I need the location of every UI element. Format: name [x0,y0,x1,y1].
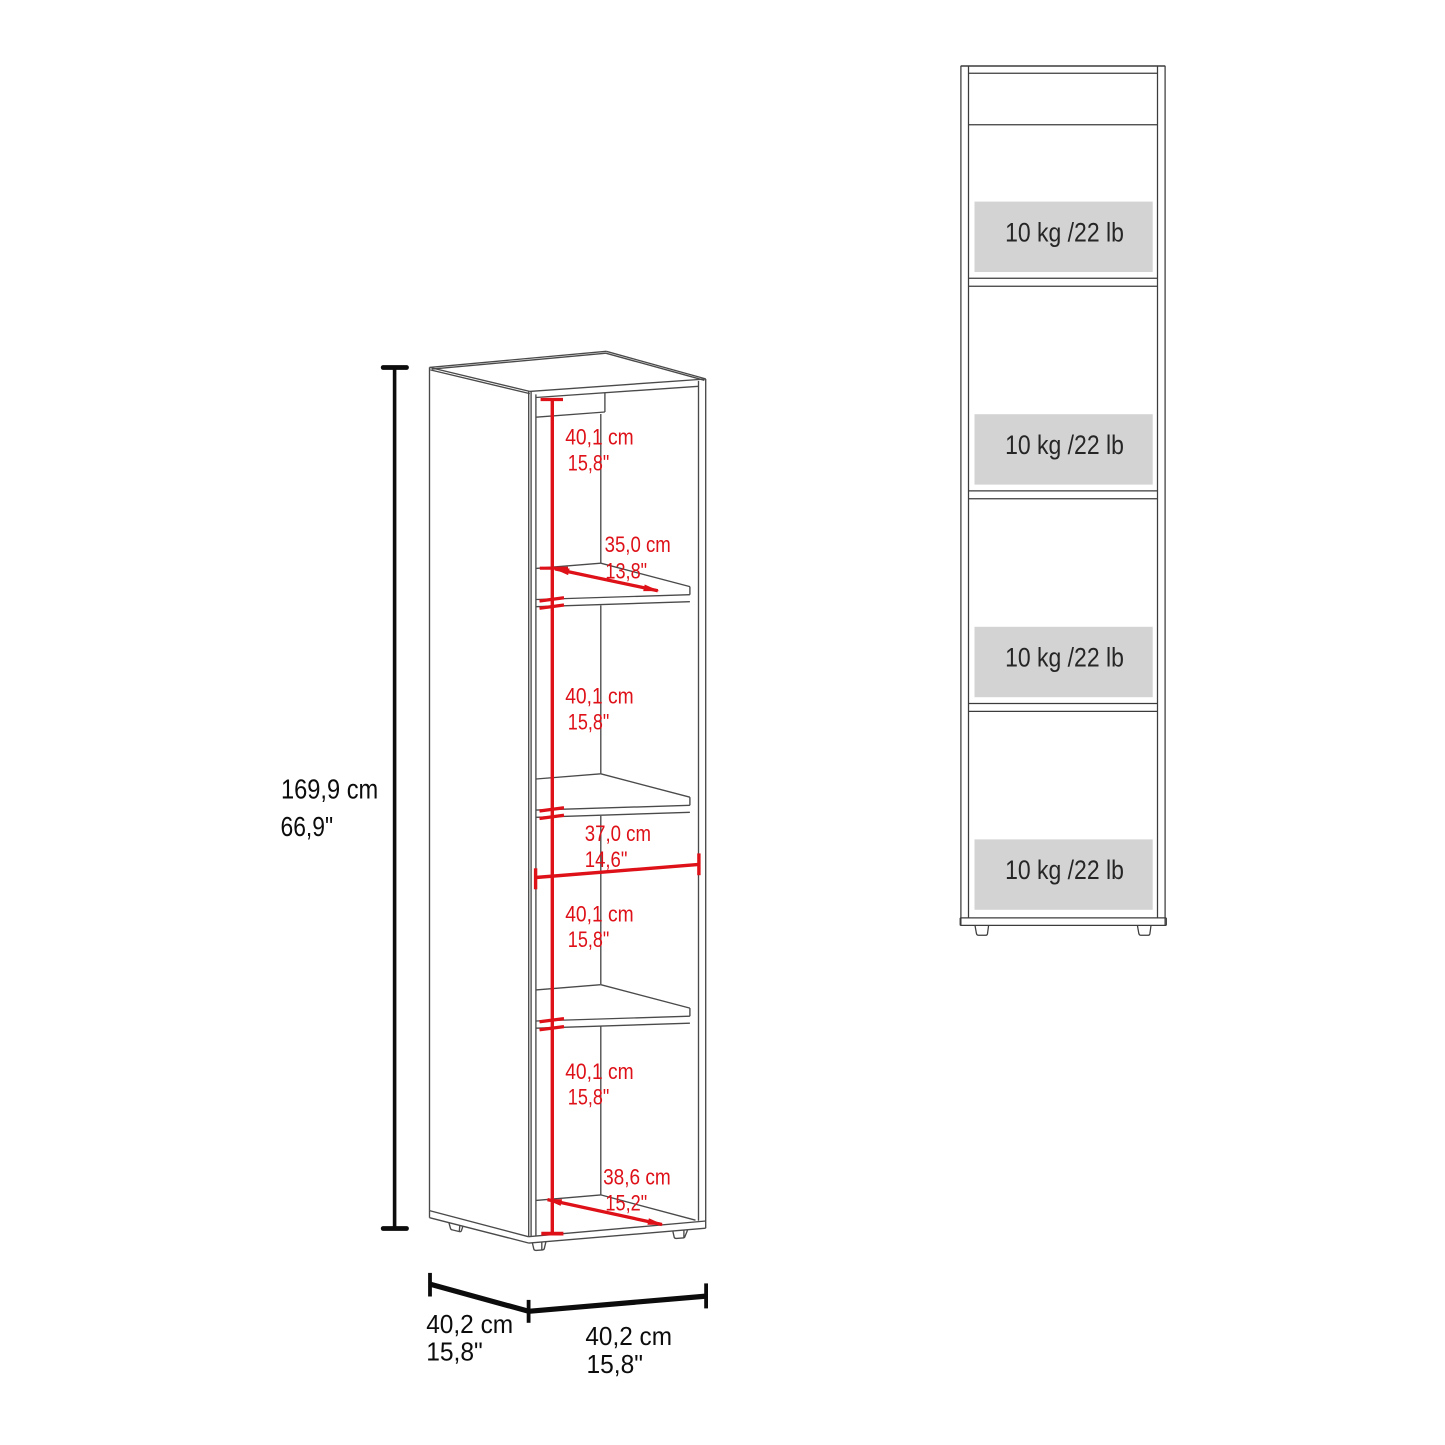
svg-text:13,8": 13,8" [605,558,647,583]
svg-text:40,1 cm: 40,1 cm [565,1059,634,1084]
svg-text:40,1 cm: 40,1 cm [565,901,634,926]
svg-text:40,1 cm: 40,1 cm [565,684,634,709]
svg-text:10 kg /22 lb: 10 kg /22 lb [1005,217,1124,247]
svg-text:15,8": 15,8" [426,1337,483,1367]
svg-text:15,2": 15,2" [605,1190,647,1215]
svg-text:15,8": 15,8" [568,927,610,952]
svg-text:10 kg /22 lb: 10 kg /22 lb [1005,855,1124,885]
svg-text:15,8": 15,8" [587,1349,644,1379]
svg-text:15,8": 15,8" [568,450,610,475]
svg-text:35,0 cm: 35,0 cm [605,532,671,557]
svg-text:38,6 cm: 38,6 cm [603,1165,671,1190]
svg-text:15,8": 15,8" [568,709,610,734]
svg-text:66,9": 66,9" [281,811,334,842]
svg-text:40,2 cm: 40,2 cm [585,1321,672,1351]
svg-text:40,2 cm: 40,2 cm [426,1309,513,1339]
svg-text:169,9 cm: 169,9 cm [281,773,378,804]
svg-text:37,0 cm: 37,0 cm [585,821,651,846]
svg-text:10 kg /22 lb: 10 kg /22 lb [1005,430,1124,460]
svg-text:40,1 cm: 40,1 cm [565,425,634,450]
svg-text:10 kg /22 lb: 10 kg /22 lb [1005,643,1124,673]
svg-text:14,6": 14,6" [585,847,628,872]
svg-text:15,8": 15,8" [568,1085,610,1110]
